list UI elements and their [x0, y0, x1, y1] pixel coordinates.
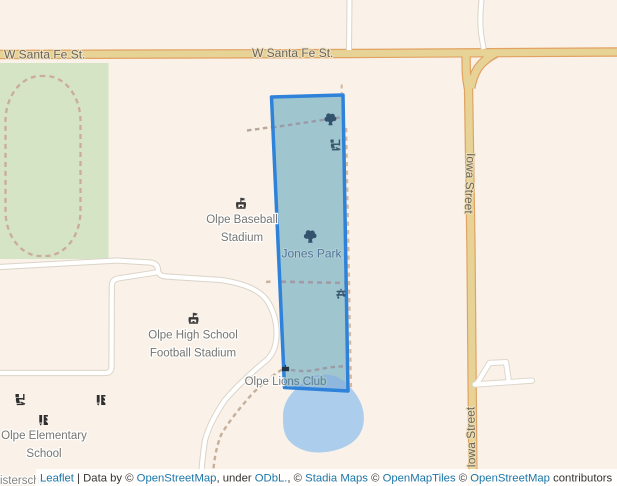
svg-text:School: School: [26, 448, 61, 460]
svg-text:Leaflet | Data by © OpenStreet: Leaflet | Data by © OpenStreetMap, under…: [40, 473, 612, 485]
svg-text:Olpe Baseball: Olpe Baseball: [206, 214, 278, 226]
svg-text:Stadium: Stadium: [221, 232, 263, 244]
svg-text:Olpe High School: Olpe High School: [148, 330, 238, 342]
svg-text:Iowa Street: Iowa Street: [462, 153, 478, 215]
svg-text:Olpe Elementary: Olpe Elementary: [1, 430, 87, 442]
svg-text:Football Stadium: Football Stadium: [150, 348, 236, 360]
svg-text:W Santa Fe St.: W Santa Fe St.: [4, 48, 85, 62]
svg-text:Iowa Street: Iowa Street: [463, 406, 478, 468]
svg-text:Jones Park: Jones Park: [281, 247, 342, 261]
svg-text:W Santa Fe St.: W Santa Fe St.: [252, 46, 333, 60]
